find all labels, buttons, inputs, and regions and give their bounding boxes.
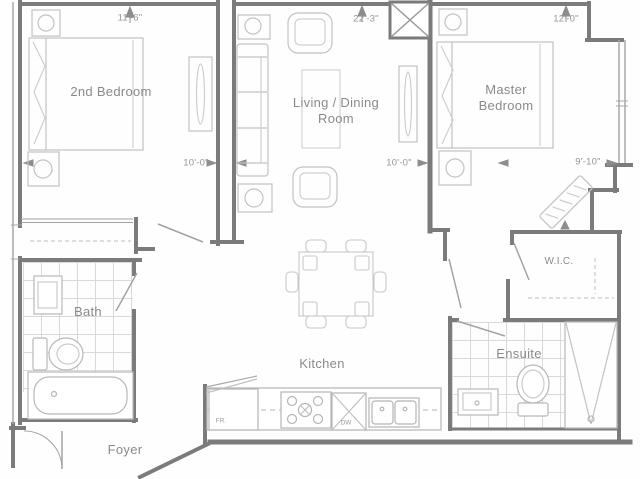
wic-door-leaf (514, 243, 529, 280)
sofa (237, 44, 268, 176)
nightstand (439, 9, 467, 35)
closet-dashes (30, 241, 614, 298)
master-door-leaf (449, 259, 461, 308)
master-label-line1: Master (479, 82, 534, 98)
shower (565, 322, 617, 428)
ensuite-fixtures (458, 322, 617, 428)
dim-living-depth: 10'-0" (386, 158, 411, 169)
room-label-living: Living / Dining Room (293, 95, 379, 127)
floorplan-drawing (0, 0, 640, 479)
bath-fixtures (28, 276, 133, 419)
toilet-tank (33, 338, 47, 370)
lamp-icon (38, 15, 54, 31)
toilet-tank (518, 403, 548, 416)
nightstand (439, 151, 471, 185)
dim-master-depth: 9'-10" (575, 157, 600, 168)
dishwasher-label: DW (341, 420, 352, 427)
room-label-wic: W.I.C. (544, 254, 573, 270)
dim-bedroom2-depth: 10'-0" (183, 158, 208, 169)
shaft-box (390, 2, 430, 38)
dresser (189, 57, 212, 131)
lamp-icon (245, 18, 261, 34)
dining-chair (374, 272, 386, 292)
fridge-label: FR. (216, 418, 226, 425)
end-table (238, 184, 272, 212)
nightstand (32, 10, 60, 36)
room-label-master: Master Bedroom (479, 82, 534, 114)
bench (539, 175, 593, 229)
dining-chair (286, 272, 298, 292)
living-label-line2: Room (293, 111, 379, 127)
ensuite-door-leaf (457, 321, 505, 336)
doors (21, 219, 529, 469)
dining-chair (346, 240, 366, 252)
entry-door-arc (24, 431, 62, 469)
dim-living-width: 22'-3" (353, 14, 378, 25)
nightstand (28, 152, 59, 186)
room-label-bath: Bath (74, 304, 102, 320)
dining-chair (306, 316, 326, 328)
master-furniture (437, 9, 593, 229)
room-label-ensuite: Ensuite (496, 346, 541, 362)
living-label-line1: Living / Dining (293, 95, 379, 111)
room-label-bedroom2: 2nd Bedroom (70, 84, 151, 100)
master-label-line2: Bedroom (479, 98, 534, 114)
lamp-icon (446, 159, 464, 177)
dining-set (286, 240, 386, 328)
lamp-icon (245, 189, 263, 207)
kitchen-sink (369, 398, 419, 427)
dining-chair (306, 240, 326, 252)
media-unit (399, 66, 417, 142)
lamp-icon (34, 160, 52, 178)
lamp-icon (445, 14, 461, 30)
toilet-bowl (49, 338, 83, 370)
room-label-kitchen: Kitchen (299, 356, 344, 372)
room-label-foyer: Foyer (108, 442, 143, 458)
dining-chair (346, 316, 366, 328)
bathtub (28, 372, 133, 419)
kitchen-counter (206, 376, 441, 430)
floor-plan: 2nd Bedroom Living / Dining Room Master … (0, 0, 640, 479)
dining-table (299, 252, 373, 316)
dim-master-width: 12'-0" (553, 14, 578, 25)
bedroom2-door-leaf (158, 224, 203, 242)
bath-door-leaf (116, 273, 137, 311)
dim-bedroom2-width: 11'-6" (118, 13, 143, 24)
